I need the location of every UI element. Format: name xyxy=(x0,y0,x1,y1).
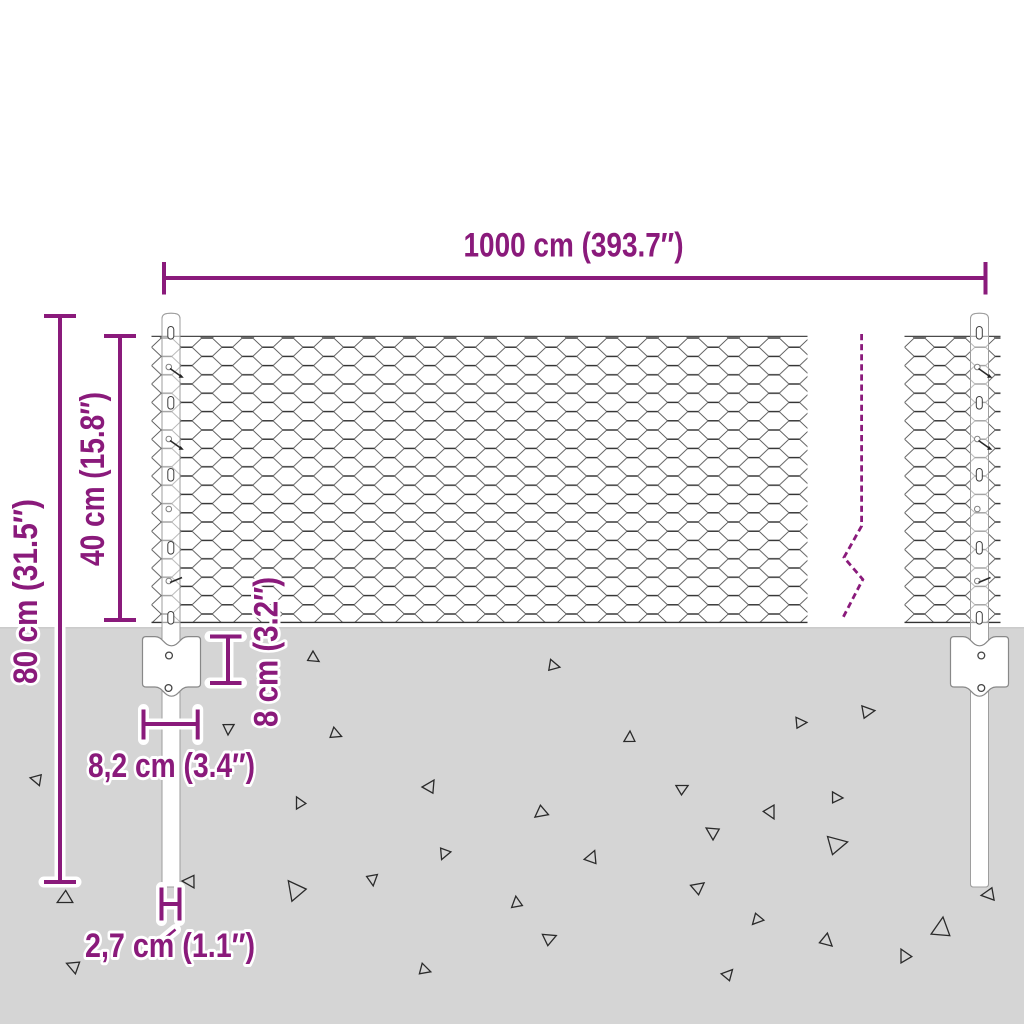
svg-text:80 cm (31.5″): 80 cm (31.5″) xyxy=(7,499,45,684)
svg-text:40 cm (15.8″): 40 cm (15.8″) xyxy=(74,392,112,566)
svg-text:2,7 cm (1.1″): 2,7 cm (1.1″) xyxy=(85,927,255,965)
svg-text:8,2 cm (3.4″): 8,2 cm (3.4″) xyxy=(88,747,255,785)
svg-text:8 cm (3.2″): 8 cm (3.2″) xyxy=(248,577,286,727)
svg-text:1000 cm (393.7″): 1000 cm (393.7″) xyxy=(464,227,684,265)
